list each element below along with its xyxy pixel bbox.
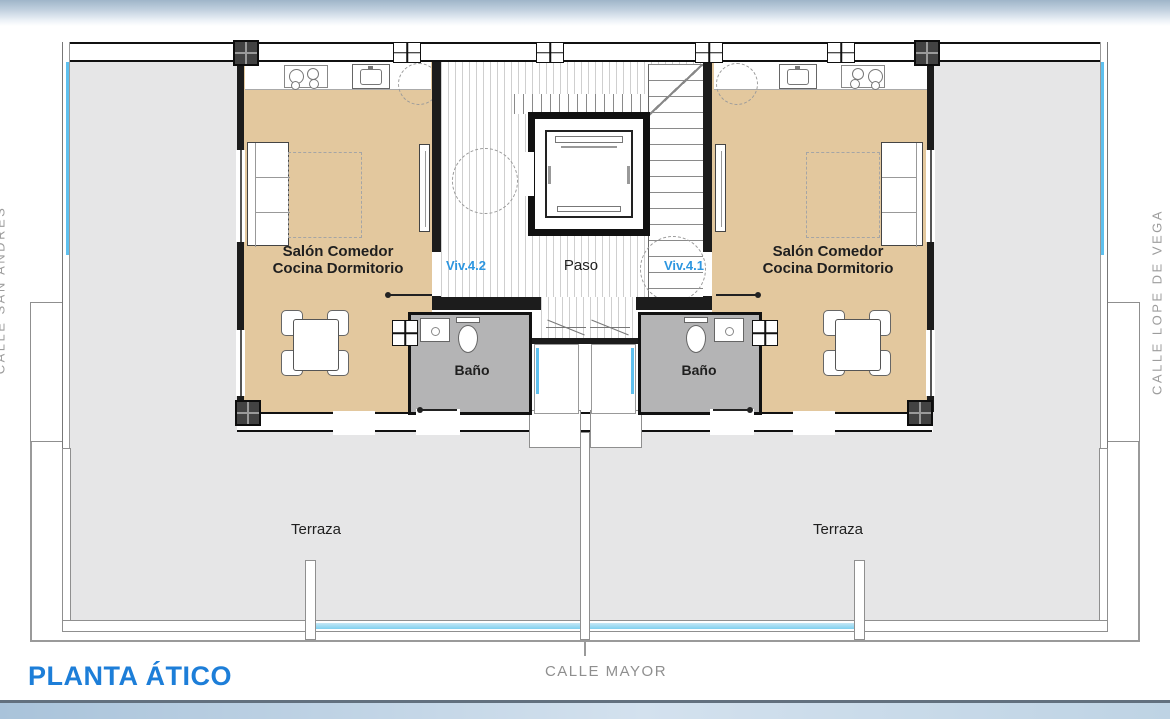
- floor-cross-mark: [590, 318, 630, 336]
- bath-window-glass: [536, 348, 539, 394]
- street-left-label: CALLE SAN ANDRÉS: [0, 206, 8, 375]
- facade-glass-east: [1101, 62, 1104, 255]
- stair-core-south-wall-right: [636, 297, 703, 310]
- room-label-line1: Salón Comedor: [763, 243, 894, 260]
- light-shaft-left: [529, 410, 581, 448]
- dining-table-icon: [835, 319, 881, 371]
- terrace-wall-left: [62, 448, 71, 626]
- entry-arrow-unit-b: [716, 294, 758, 296]
- facade-glass-west: [66, 62, 69, 255]
- cooktop-icon: [284, 65, 328, 88]
- bath-window-pillar: [392, 320, 418, 346]
- floor-plan-page: Salón Comedor Cocina Dormitorio Salón Co…: [0, 0, 1170, 719]
- column-bottom-left: [235, 400, 261, 426]
- exterior-wall-top: [62, 42, 1108, 62]
- bed-outline: [288, 152, 362, 238]
- tv-cabinet: [419, 144, 430, 232]
- door-hinge-dot: [747, 407, 753, 413]
- door-swing-line: [421, 409, 457, 411]
- bath-sink-icon: [714, 318, 744, 342]
- tv-cabinet: [715, 144, 726, 232]
- sofa-icon: [247, 142, 289, 246]
- terrace-door-opening: [793, 411, 835, 435]
- left-boundary-notch: [30, 302, 66, 442]
- kitchen-table-right-icon: [716, 63, 758, 105]
- bathroom-b-label: Baño: [682, 362, 717, 378]
- ceiling-opening-left: [452, 148, 518, 214]
- stair-core-west-wall-foot: [432, 296, 441, 310]
- terrace-wall-right: [1099, 448, 1108, 626]
- dining-table-icon: [293, 319, 339, 371]
- unit-a-west-window: [236, 150, 245, 242]
- room-label-line2: Cocina Dormitorio: [763, 260, 894, 277]
- floor-cross-mark: [546, 318, 586, 336]
- right-side-terrace-floor: [933, 60, 1100, 450]
- unit-b-id-label: Viv.4.1: [664, 258, 704, 273]
- bathroom-a-label: Baño: [455, 362, 490, 378]
- unit-b-room-label: Salón Comedor Cocina Dormitorio: [763, 243, 894, 277]
- unit-b-east-window: [926, 330, 935, 396]
- stair-core-west-wall: [432, 62, 441, 252]
- stair-core-south-wall-left: [441, 297, 541, 310]
- elevator-shaft-opening: [524, 152, 534, 196]
- facade-window-pillar: [393, 42, 421, 63]
- column-top-left: [233, 40, 259, 66]
- elevator-car: [545, 130, 633, 218]
- unit-b-east-window: [926, 150, 935, 242]
- shaft-void-right: [591, 344, 636, 414]
- cooktop-icon: [841, 65, 885, 88]
- terrace-divider-center: [580, 432, 590, 640]
- room-label-line2: Cocina Dormitorio: [273, 260, 404, 277]
- door-hinge-dot: [417, 407, 423, 413]
- bottom-gradient-band: [0, 700, 1170, 719]
- left-side-terrace-floor: [70, 60, 237, 450]
- entry-arrow-dot: [385, 292, 391, 298]
- bath-sink-icon: [420, 318, 450, 342]
- bath-window-pillar: [752, 320, 778, 346]
- top-gradient-band: [0, 0, 1170, 26]
- right-boundary-notch: [1104, 302, 1140, 442]
- terrace-stub-right: [854, 560, 865, 640]
- kitchen-sink-icon: [779, 64, 817, 89]
- light-shaft-right: [590, 410, 642, 448]
- bed-outline: [806, 152, 880, 238]
- street-bottom-label: CALLE MAYOR: [545, 663, 667, 680]
- door-swing-line: [713, 409, 749, 411]
- facade-window-pillar: [827, 42, 855, 63]
- terrace-a-label: Terraza: [291, 521, 341, 538]
- unit-a-id-label: Viv.4.2: [446, 258, 486, 273]
- entry-arrow-unit-a: [390, 294, 432, 296]
- bath-door-opening: [710, 409, 754, 435]
- terrace-stub-left: [305, 560, 316, 640]
- toilet-tank: [456, 317, 480, 323]
- sofa-icon: [881, 142, 923, 246]
- bath-window-glass: [631, 348, 634, 394]
- facade-window-pillar: [536, 42, 564, 63]
- terrace-divider-tail: [584, 640, 586, 656]
- stair-core-east-wall-foot: [703, 296, 712, 310]
- bath-door-opening: [416, 409, 460, 435]
- page-title: PLANTA ÁTICO: [28, 661, 232, 692]
- facade-window-pillar: [695, 42, 723, 63]
- street-right-label: CALLE LOPE DE VEGA: [1150, 209, 1165, 395]
- terrace-b-label: Terraza: [813, 521, 863, 538]
- stair-core-east-wall: [703, 62, 712, 252]
- column-top-right: [914, 40, 940, 66]
- unit-a-west-window: [236, 330, 245, 396]
- stair-upper-treads: [514, 94, 648, 114]
- unit-a-room-label: Salón Comedor Cocina Dormitorio: [273, 243, 404, 277]
- entry-arrow-dot: [755, 292, 761, 298]
- kitchen-sink-icon: [352, 64, 390, 89]
- stair-break-line: [648, 64, 703, 116]
- toilet-tank: [684, 317, 708, 323]
- terrace-door-opening: [333, 411, 375, 435]
- room-label-line1: Salón Comedor: [273, 243, 404, 260]
- column-bottom-right: [907, 400, 933, 426]
- shaft-void-left: [534, 344, 579, 414]
- hall-label: Paso: [564, 257, 598, 274]
